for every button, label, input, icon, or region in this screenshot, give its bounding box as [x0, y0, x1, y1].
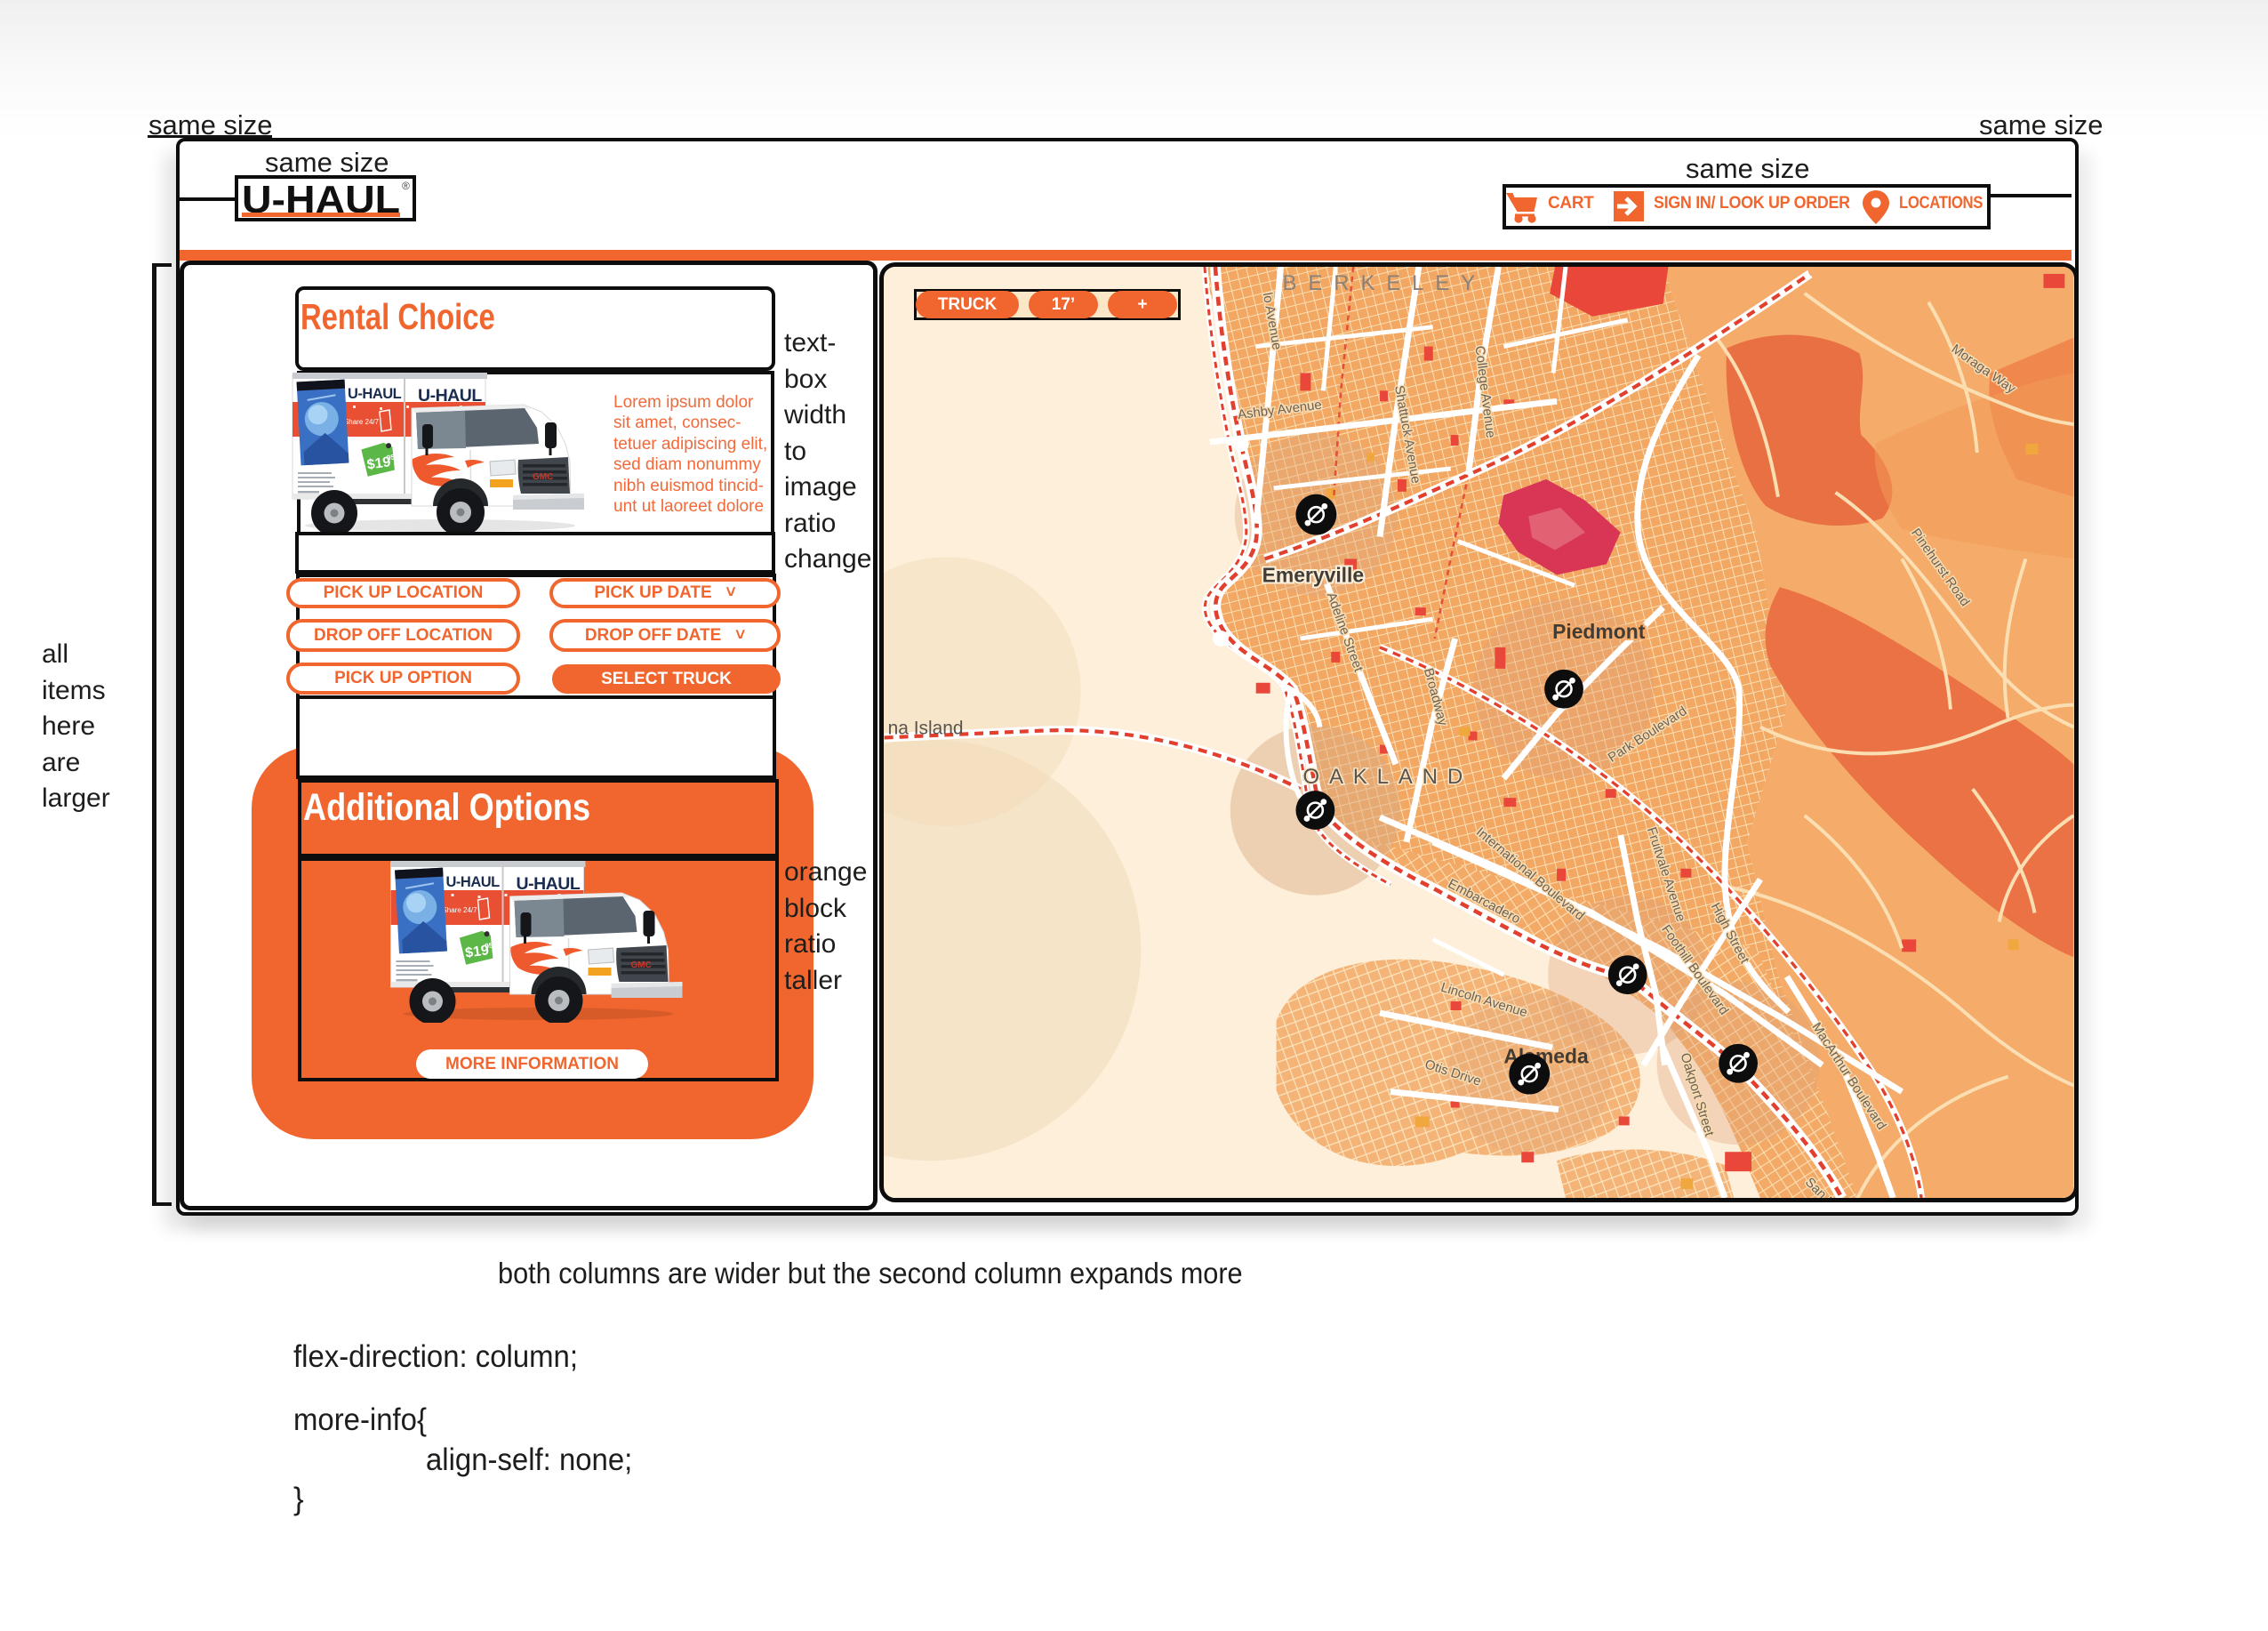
- svg-text:Piedmont: Piedmont: [1552, 620, 1646, 643]
- svg-text:Emeryville: Emeryville: [1262, 563, 1364, 586]
- svg-text:BERKELEY: BERKELEY: [1283, 271, 1487, 295]
- svg-text:®: ®: [402, 180, 410, 192]
- svg-text:na Island: na Island: [888, 718, 964, 738]
- svg-text:U-HAUL: U-HAUL: [242, 179, 400, 218]
- svg-text:OAKLAND: OAKLAND: [1302, 765, 1472, 789]
